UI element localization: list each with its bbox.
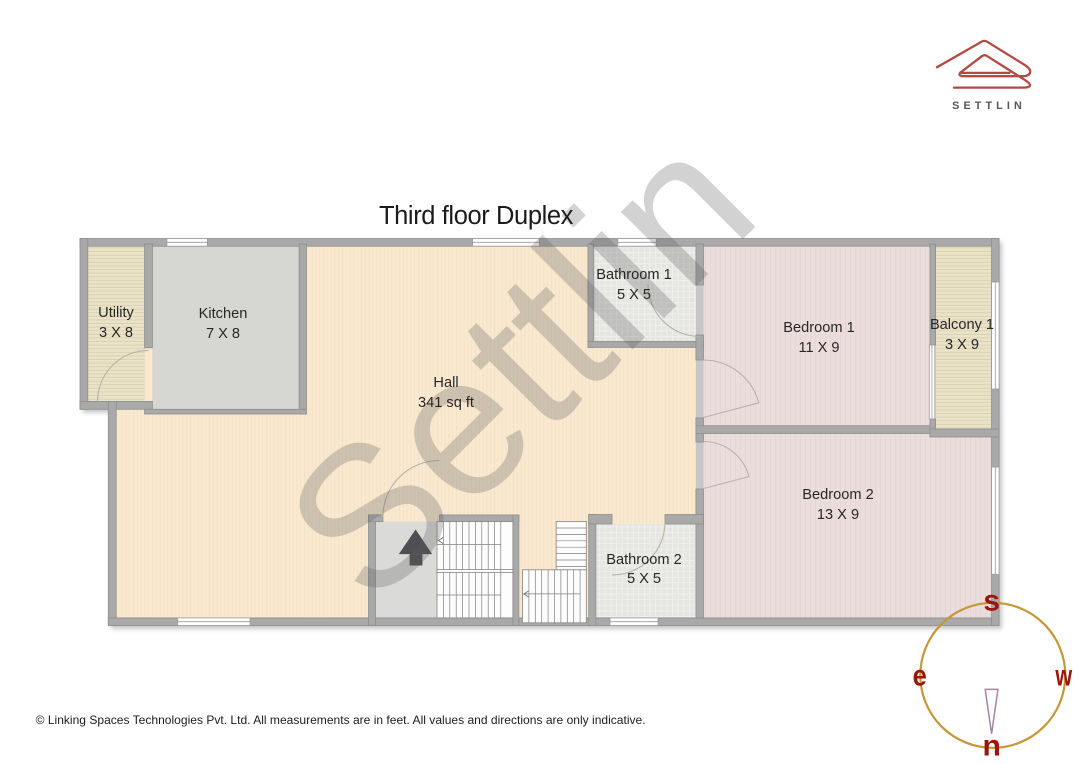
- svg-text:w: w: [1055, 658, 1073, 692]
- svg-text:e: e: [913, 659, 927, 692]
- svg-text:SETTLIN: SETTLIN: [952, 100, 1026, 112]
- svg-text:n: n: [983, 730, 1001, 763]
- svg-text:s: s: [983, 585, 1000, 618]
